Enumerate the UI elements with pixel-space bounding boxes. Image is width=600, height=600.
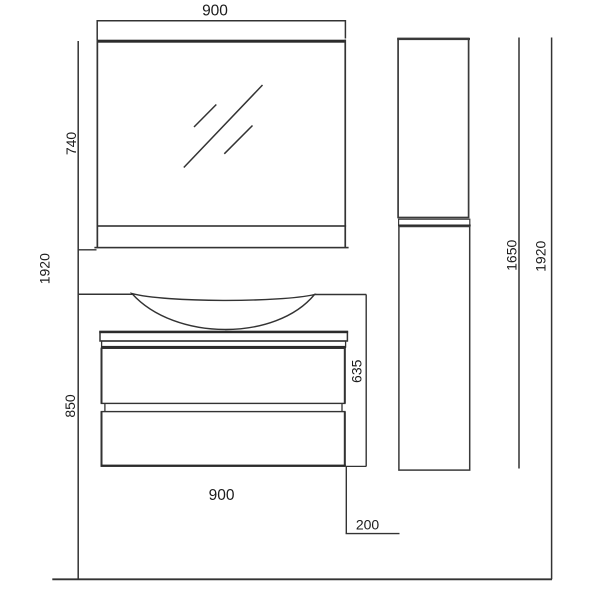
svg-text:740: 740 [63, 132, 79, 156]
svg-text:1920: 1920 [36, 253, 52, 284]
svg-text:1920: 1920 [533, 241, 549, 272]
svg-text:635: 635 [348, 359, 364, 383]
svg-text:200: 200 [356, 517, 380, 533]
svg-text:1650: 1650 [503, 240, 519, 271]
svg-text:850: 850 [62, 394, 78, 418]
svg-text:900: 900 [202, 3, 228, 20]
svg-text:900: 900 [209, 487, 235, 504]
